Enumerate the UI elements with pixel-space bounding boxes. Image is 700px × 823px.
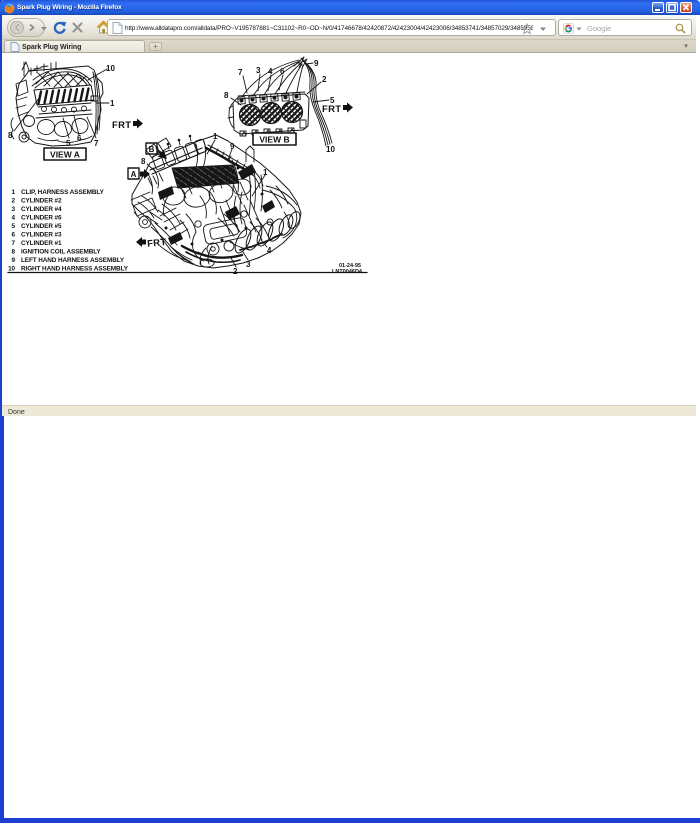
svg-text:A: A: [131, 170, 137, 179]
svg-text:IGNITION COIL ASSEMBLY: IGNITION COIL ASSEMBLY: [21, 249, 101, 256]
svg-text:CLIP, HARNESS ASSEMBLY: CLIP, HARNESS ASSEMBLY: [21, 189, 105, 196]
svg-text:2: 2: [233, 267, 238, 276]
svg-text:CYLINDER #4: CYLINDER #4: [21, 206, 62, 213]
svg-text:CYLINDER #1: CYLINDER #1: [21, 240, 62, 247]
svg-text:7: 7: [12, 240, 16, 247]
svg-text:10: 10: [8, 266, 15, 273]
svg-text:10: 10: [106, 64, 115, 73]
svg-text:3: 3: [256, 66, 261, 75]
svg-text:9: 9: [230, 142, 235, 151]
svg-text:5: 5: [12, 223, 16, 230]
svg-text:10: 10: [326, 145, 335, 154]
svg-text:FRT: FRT: [322, 104, 341, 115]
svg-text:6: 6: [77, 134, 82, 143]
svg-text:3: 3: [12, 206, 16, 213]
svg-text:2: 2: [12, 198, 16, 205]
svg-text:4: 4: [12, 215, 16, 222]
svg-text:6: 6: [12, 232, 16, 239]
svg-text:FRT: FRT: [112, 120, 131, 131]
svg-text:9: 9: [12, 257, 16, 264]
svg-text:CYLINDER #3: CYLINDER #3: [21, 232, 62, 239]
svg-text:1: 1: [12, 189, 16, 196]
svg-text:3: 3: [246, 260, 251, 269]
svg-text:8: 8: [224, 91, 229, 100]
svg-text:8: 8: [141, 157, 146, 166]
svg-text:1: 1: [213, 132, 218, 141]
svg-text:CYLINDER #2: CYLINDER #2: [21, 198, 62, 205]
svg-text:7: 7: [94, 139, 99, 148]
svg-text:4: 4: [268, 67, 273, 76]
svg-text:1: 1: [110, 99, 115, 108]
svg-text:2: 2: [322, 75, 327, 84]
svg-text:CYLINDER #5: CYLINDER #5: [21, 223, 62, 230]
svg-text:4: 4: [267, 246, 272, 255]
svg-text:6: 6: [280, 67, 285, 76]
svg-text:CYLINDER #6: CYLINDER #6: [21, 215, 62, 222]
svg-text:LEFT HAND HARNESS ASSEMBLY: LEFT HAND HARNESS ASSEMBLY: [21, 257, 125, 264]
svg-text:8: 8: [12, 249, 16, 256]
svg-text:RIGHT HAND HARNESS ASSEMBLY: RIGHT HAND HARNESS ASSEMBLY: [21, 266, 129, 273]
svg-text:B: B: [149, 145, 155, 154]
svg-text:5: 5: [66, 139, 71, 148]
svg-text:1: 1: [263, 168, 268, 177]
svg-text:FRT: FRT: [147, 237, 167, 250]
svg-text:8: 8: [8, 131, 13, 140]
svg-text:VIEW A: VIEW A: [50, 150, 80, 160]
svg-text:7: 7: [238, 68, 243, 77]
svg-text:9: 9: [314, 59, 319, 68]
svg-text:VIEW B: VIEW B: [259, 135, 289, 145]
